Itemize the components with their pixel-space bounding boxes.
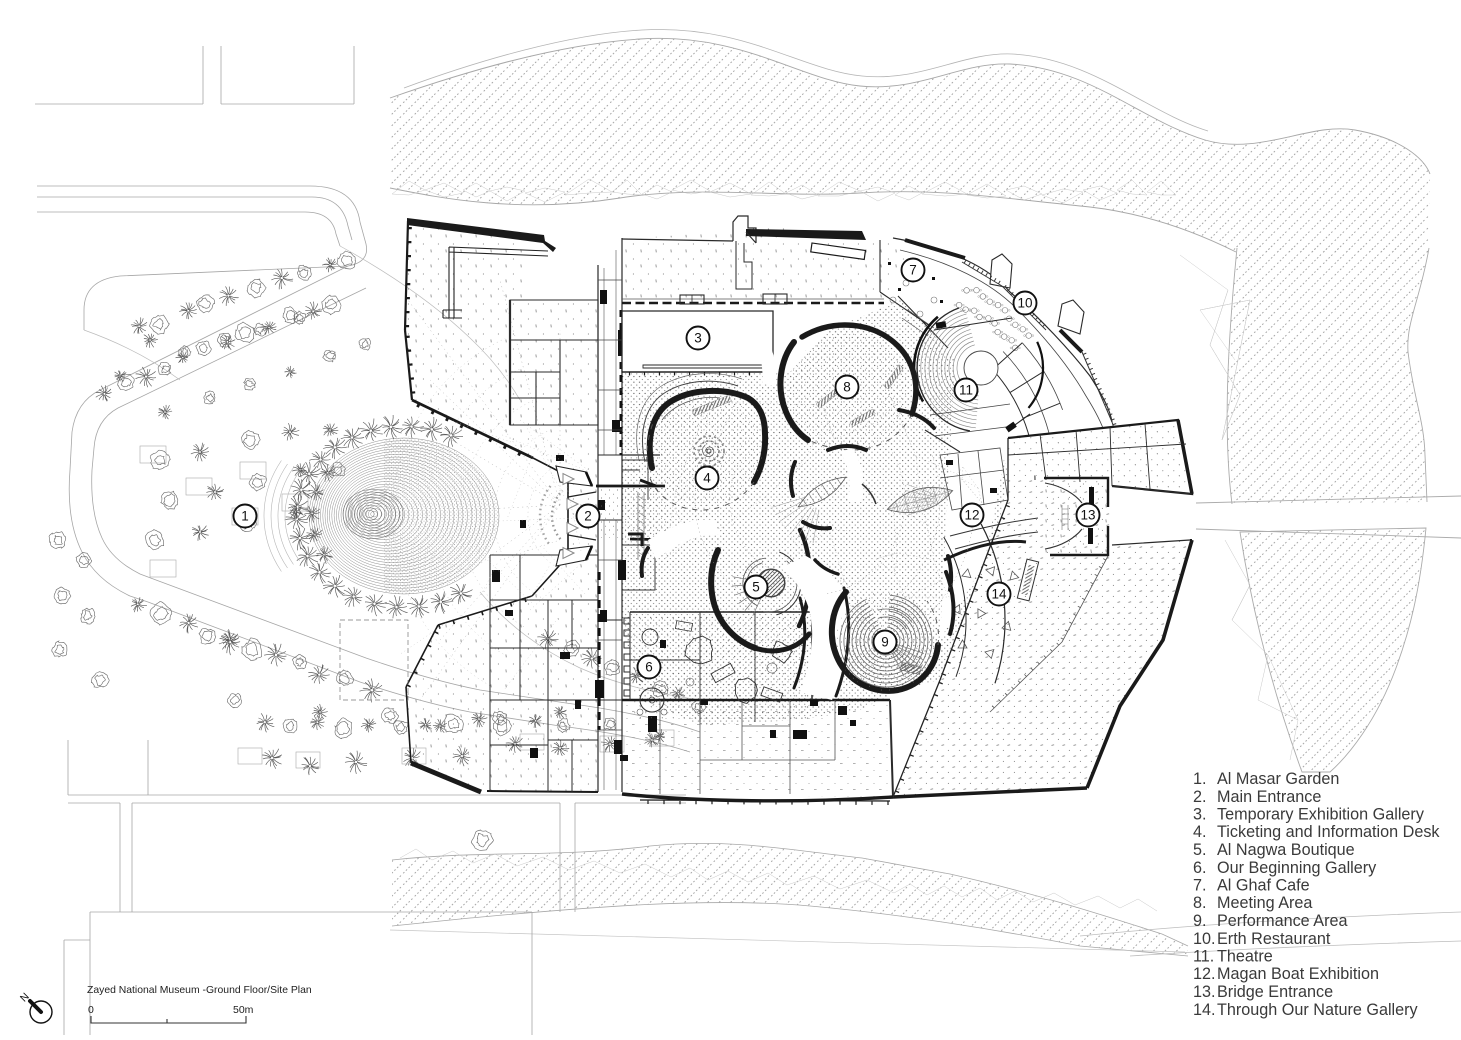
svg-text:13: 13 bbox=[1080, 508, 1095, 523]
svg-text:Ticketing and Information Desk: Ticketing and Information Desk bbox=[1217, 823, 1440, 841]
svg-text:2.: 2. bbox=[1193, 788, 1207, 806]
svg-text:6: 6 bbox=[645, 660, 653, 675]
svg-text:Magan Boat Exhibition: Magan Boat Exhibition bbox=[1217, 965, 1379, 983]
svg-text:Performance Area: Performance Area bbox=[1217, 912, 1347, 930]
svg-text:4: 4 bbox=[703, 471, 711, 486]
svg-text:10: 10 bbox=[1017, 296, 1032, 311]
svg-text:Theatre: Theatre bbox=[1217, 948, 1273, 966]
svg-text:Our Beginning Gallery: Our Beginning Gallery bbox=[1217, 859, 1377, 877]
svg-text:Al Nagwa Boutique: Al Nagwa Boutique bbox=[1217, 841, 1355, 859]
svg-text:10.: 10. bbox=[1193, 930, 1216, 948]
svg-text:8: 8 bbox=[843, 380, 851, 395]
svg-text:8.: 8. bbox=[1193, 894, 1207, 912]
svg-text:7: 7 bbox=[909, 263, 917, 278]
svg-text:Main Entrance: Main Entrance bbox=[1217, 788, 1321, 806]
svg-text:Temporary Exhibition Gallery: Temporary Exhibition Gallery bbox=[1217, 806, 1425, 824]
svg-text:14: 14 bbox=[991, 587, 1007, 602]
svg-text:Through Our Nature Gallery: Through Our Nature Gallery bbox=[1217, 1001, 1419, 1019]
svg-text:9.: 9. bbox=[1193, 912, 1207, 930]
svg-text:13.: 13. bbox=[1193, 983, 1216, 1001]
svg-text:3.: 3. bbox=[1193, 806, 1207, 824]
svg-text:Bridge Entrance: Bridge Entrance bbox=[1217, 983, 1333, 1001]
svg-text:12: 12 bbox=[964, 508, 979, 523]
svg-text:11: 11 bbox=[959, 383, 973, 398]
svg-text:Meeting Area: Meeting Area bbox=[1217, 894, 1312, 912]
svg-text:1.: 1. bbox=[1193, 770, 1207, 788]
svg-text:11.: 11. bbox=[1193, 948, 1214, 966]
svg-text:50m: 50m bbox=[233, 1004, 254, 1016]
svg-text:3: 3 bbox=[694, 331, 702, 346]
svg-text:9: 9 bbox=[881, 635, 889, 650]
svg-text:5: 5 bbox=[752, 580, 760, 595]
svg-text:5.: 5. bbox=[1193, 841, 1207, 859]
svg-text:Al Masar Garden: Al Masar Garden bbox=[1217, 770, 1339, 788]
svg-text:1: 1 bbox=[241, 509, 249, 524]
svg-text:4.: 4. bbox=[1193, 823, 1207, 841]
svg-text:Al Ghaf Cafe: Al Ghaf Cafe bbox=[1217, 877, 1310, 895]
svg-text:14.: 14. bbox=[1193, 1001, 1216, 1019]
svg-text:7.: 7. bbox=[1193, 877, 1207, 895]
svg-text:6.: 6. bbox=[1193, 859, 1207, 877]
svg-text:0: 0 bbox=[88, 1004, 94, 1016]
svg-text:12.: 12. bbox=[1193, 965, 1216, 983]
svg-text:2: 2 bbox=[584, 509, 592, 524]
svg-text:Zayed National Museum -Ground: Zayed National Museum -Ground Floor/Site… bbox=[87, 985, 312, 996]
svg-text:Erth Restaurant: Erth Restaurant bbox=[1217, 930, 1331, 948]
